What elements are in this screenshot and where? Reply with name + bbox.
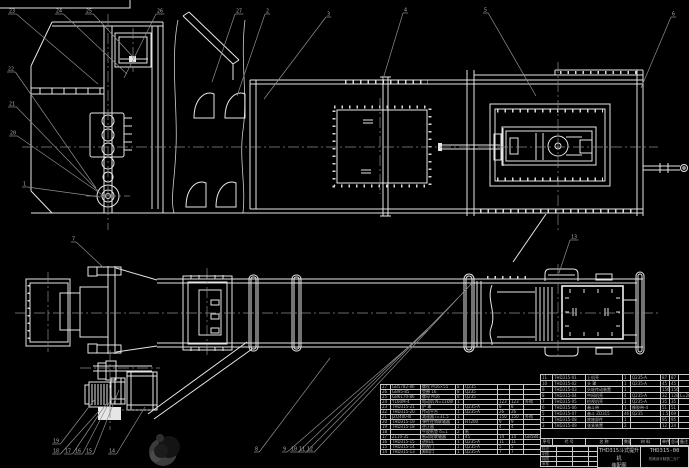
inspection-door xyxy=(337,110,427,183)
callout-number: 14 xyxy=(109,449,115,455)
parts-table-header: 序号代 号名 称数量材 料单件总计备注 xyxy=(540,438,689,446)
table-cell: 24 xyxy=(670,423,679,429)
callout-leader-line xyxy=(383,13,403,79)
table-cell xyxy=(557,462,573,467)
top-view-side-elevation xyxy=(31,12,688,262)
table-cell: 总计 xyxy=(670,439,679,446)
table-cell: 7 xyxy=(510,450,524,455)
callout-number: 13 xyxy=(571,235,577,241)
table-cell: 2 xyxy=(623,423,631,429)
boot-section xyxy=(438,70,688,216)
head-housing xyxy=(31,22,163,213)
table-cell xyxy=(573,462,589,467)
callout-number: 26 xyxy=(157,9,163,15)
callout-number: 3 xyxy=(327,12,330,18)
callout-number: 9 xyxy=(283,447,286,453)
parts-row: 3THD315-09张紧装置21224 xyxy=(541,423,689,429)
callout-leader-line xyxy=(72,404,106,454)
callout-number: 8 xyxy=(255,447,258,453)
callout-number: 2 xyxy=(266,9,269,15)
callout-number: 18 xyxy=(53,449,59,455)
sheet-border-corner xyxy=(0,0,130,8)
buckets xyxy=(186,93,245,207)
drawing-subtitle: 装配图 xyxy=(598,463,640,468)
callout-number: 17 xyxy=(65,449,71,455)
callout-leader-line xyxy=(63,14,127,74)
section-leader-line xyxy=(513,214,546,262)
inlet-chute xyxy=(183,12,239,80)
callout-leader-line xyxy=(15,72,96,188)
table-cell xyxy=(524,450,541,455)
table-cell: 14 xyxy=(381,450,391,455)
table-cell xyxy=(631,423,661,429)
table-cell: 备注 xyxy=(679,439,689,446)
callout-leader-line xyxy=(93,14,133,57)
watermark-blob xyxy=(149,434,180,466)
chain-bracket xyxy=(90,113,124,157)
title-block-name: THD315斗式提升机 装配图 xyxy=(597,446,641,468)
plan-head xyxy=(26,266,157,354)
table-cell: 单件 xyxy=(661,439,670,446)
callout-number: 5 xyxy=(484,8,487,14)
table-cell: 名 称 xyxy=(586,439,623,446)
drawing-number: THD315-00 xyxy=(641,447,688,456)
callout-number: 7 xyxy=(72,237,75,243)
drawing-company: 机械设计制造二分厂 xyxy=(641,456,688,462)
callout-leader-line xyxy=(259,358,330,452)
table-cell: 7 xyxy=(498,450,510,455)
callout-number: 25 xyxy=(86,9,92,15)
table-cell: 3 xyxy=(541,423,553,429)
callout-leader-line xyxy=(82,397,112,454)
callout-number: 16 xyxy=(75,449,81,455)
table-cell: GB5843 xyxy=(524,435,541,440)
callout-leader-line xyxy=(16,14,98,84)
callout-leader-line xyxy=(93,390,119,454)
title-block-number: THD315-00 机械设计制造二分厂 xyxy=(640,446,689,468)
table-cell: 张紧装置 xyxy=(586,423,623,429)
belt-curves xyxy=(172,20,245,213)
callout-number: 23 xyxy=(9,9,15,15)
table-cell: 1 xyxy=(456,450,464,455)
parts-table-right: 11THD315-01上机壳1Q235-A878710THD315-02头 罩1… xyxy=(540,374,689,429)
table-cell: 审核 xyxy=(541,462,557,467)
table-cell xyxy=(679,423,689,429)
take-up-screw-right xyxy=(643,163,688,173)
table-cell: 序号 xyxy=(541,439,553,446)
callout-number: 20 xyxy=(10,131,16,137)
callout-leader-line xyxy=(17,136,104,196)
callout-leader-line xyxy=(16,107,99,192)
callout-number: 15 xyxy=(86,449,92,455)
table-cell: 代 号 xyxy=(553,439,586,446)
callout-number: 4 xyxy=(404,8,407,14)
parts-row: 14THD315-13卸料口1Q235-A77 xyxy=(381,450,541,455)
callout-leader-line xyxy=(264,17,326,99)
callout-number: 21 xyxy=(9,102,15,108)
table-cell: Q235-A xyxy=(464,450,498,455)
callout-leader-line xyxy=(641,17,671,88)
drawing-title: THD315斗式提升机 xyxy=(598,447,640,463)
table-cell: 卸料口 xyxy=(421,450,456,455)
table-cell: THD315-13 xyxy=(391,450,421,455)
callout-number: 19 xyxy=(53,439,59,445)
callout-number: 10 xyxy=(291,447,297,453)
callout-number: 11 xyxy=(299,447,305,453)
table-cell: 数量 xyxy=(623,439,631,446)
callout-number: 27 xyxy=(236,9,242,15)
cad-drawing-canvas: 2324252627234562221201719181716151489101… xyxy=(0,0,689,468)
take-up-carriage xyxy=(502,127,596,165)
callout-leader-line xyxy=(212,14,235,82)
table-cell: 材 料 xyxy=(631,439,661,446)
callout-number: 24 xyxy=(56,9,62,15)
centerlines xyxy=(15,14,658,430)
parts-header-row: 序号代 号名 称数量材 料单件总计备注 xyxy=(541,439,689,446)
callout-leader-line xyxy=(76,242,104,268)
callout-number: 12 xyxy=(307,447,313,453)
table-cell: 电动机 N=11kW xyxy=(421,400,456,405)
callout-number: 6 xyxy=(672,12,675,18)
table-cell: THD315-09 xyxy=(553,423,586,429)
callout-leader-line xyxy=(559,240,570,273)
drive-unit xyxy=(85,361,157,420)
callout-number: 22 xyxy=(8,67,14,73)
table-cell: 12 xyxy=(661,423,670,429)
parts-table-left: 27GB5782-86螺栓 M16×558Q23526GB95-85垫圈 168… xyxy=(380,384,541,455)
callout-leader-line xyxy=(27,187,100,197)
casing-mid xyxy=(31,77,643,216)
callout-number: 1 xyxy=(23,182,26,188)
